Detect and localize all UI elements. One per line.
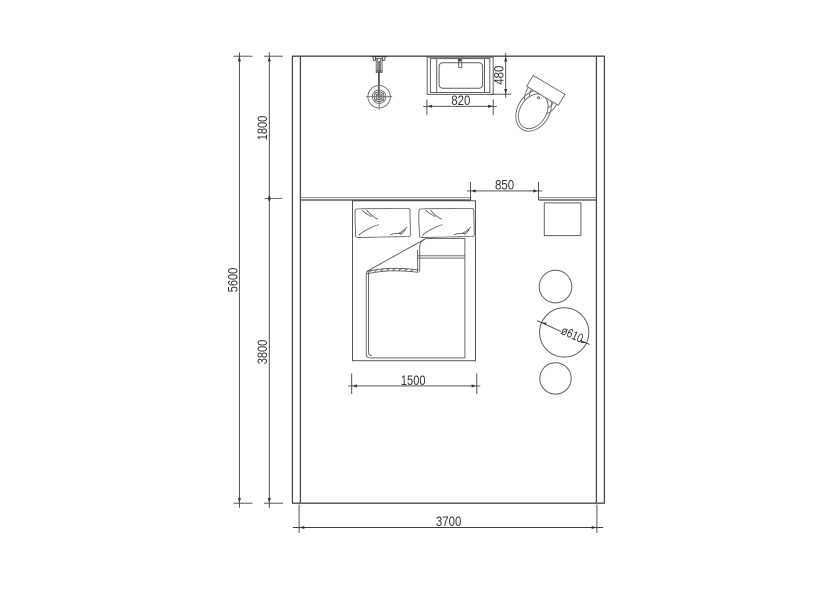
svg-text:3700: 3700 (436, 514, 462, 529)
svg-text:3800: 3800 (255, 340, 270, 365)
svg-text:820: 820 (451, 93, 470, 108)
svg-text:480: 480 (492, 66, 507, 85)
svg-text:850: 850 (495, 178, 514, 193)
svg-text:1800: 1800 (255, 116, 270, 141)
svg-text:1500: 1500 (401, 373, 426, 388)
svg-text:5600: 5600 (225, 268, 240, 293)
